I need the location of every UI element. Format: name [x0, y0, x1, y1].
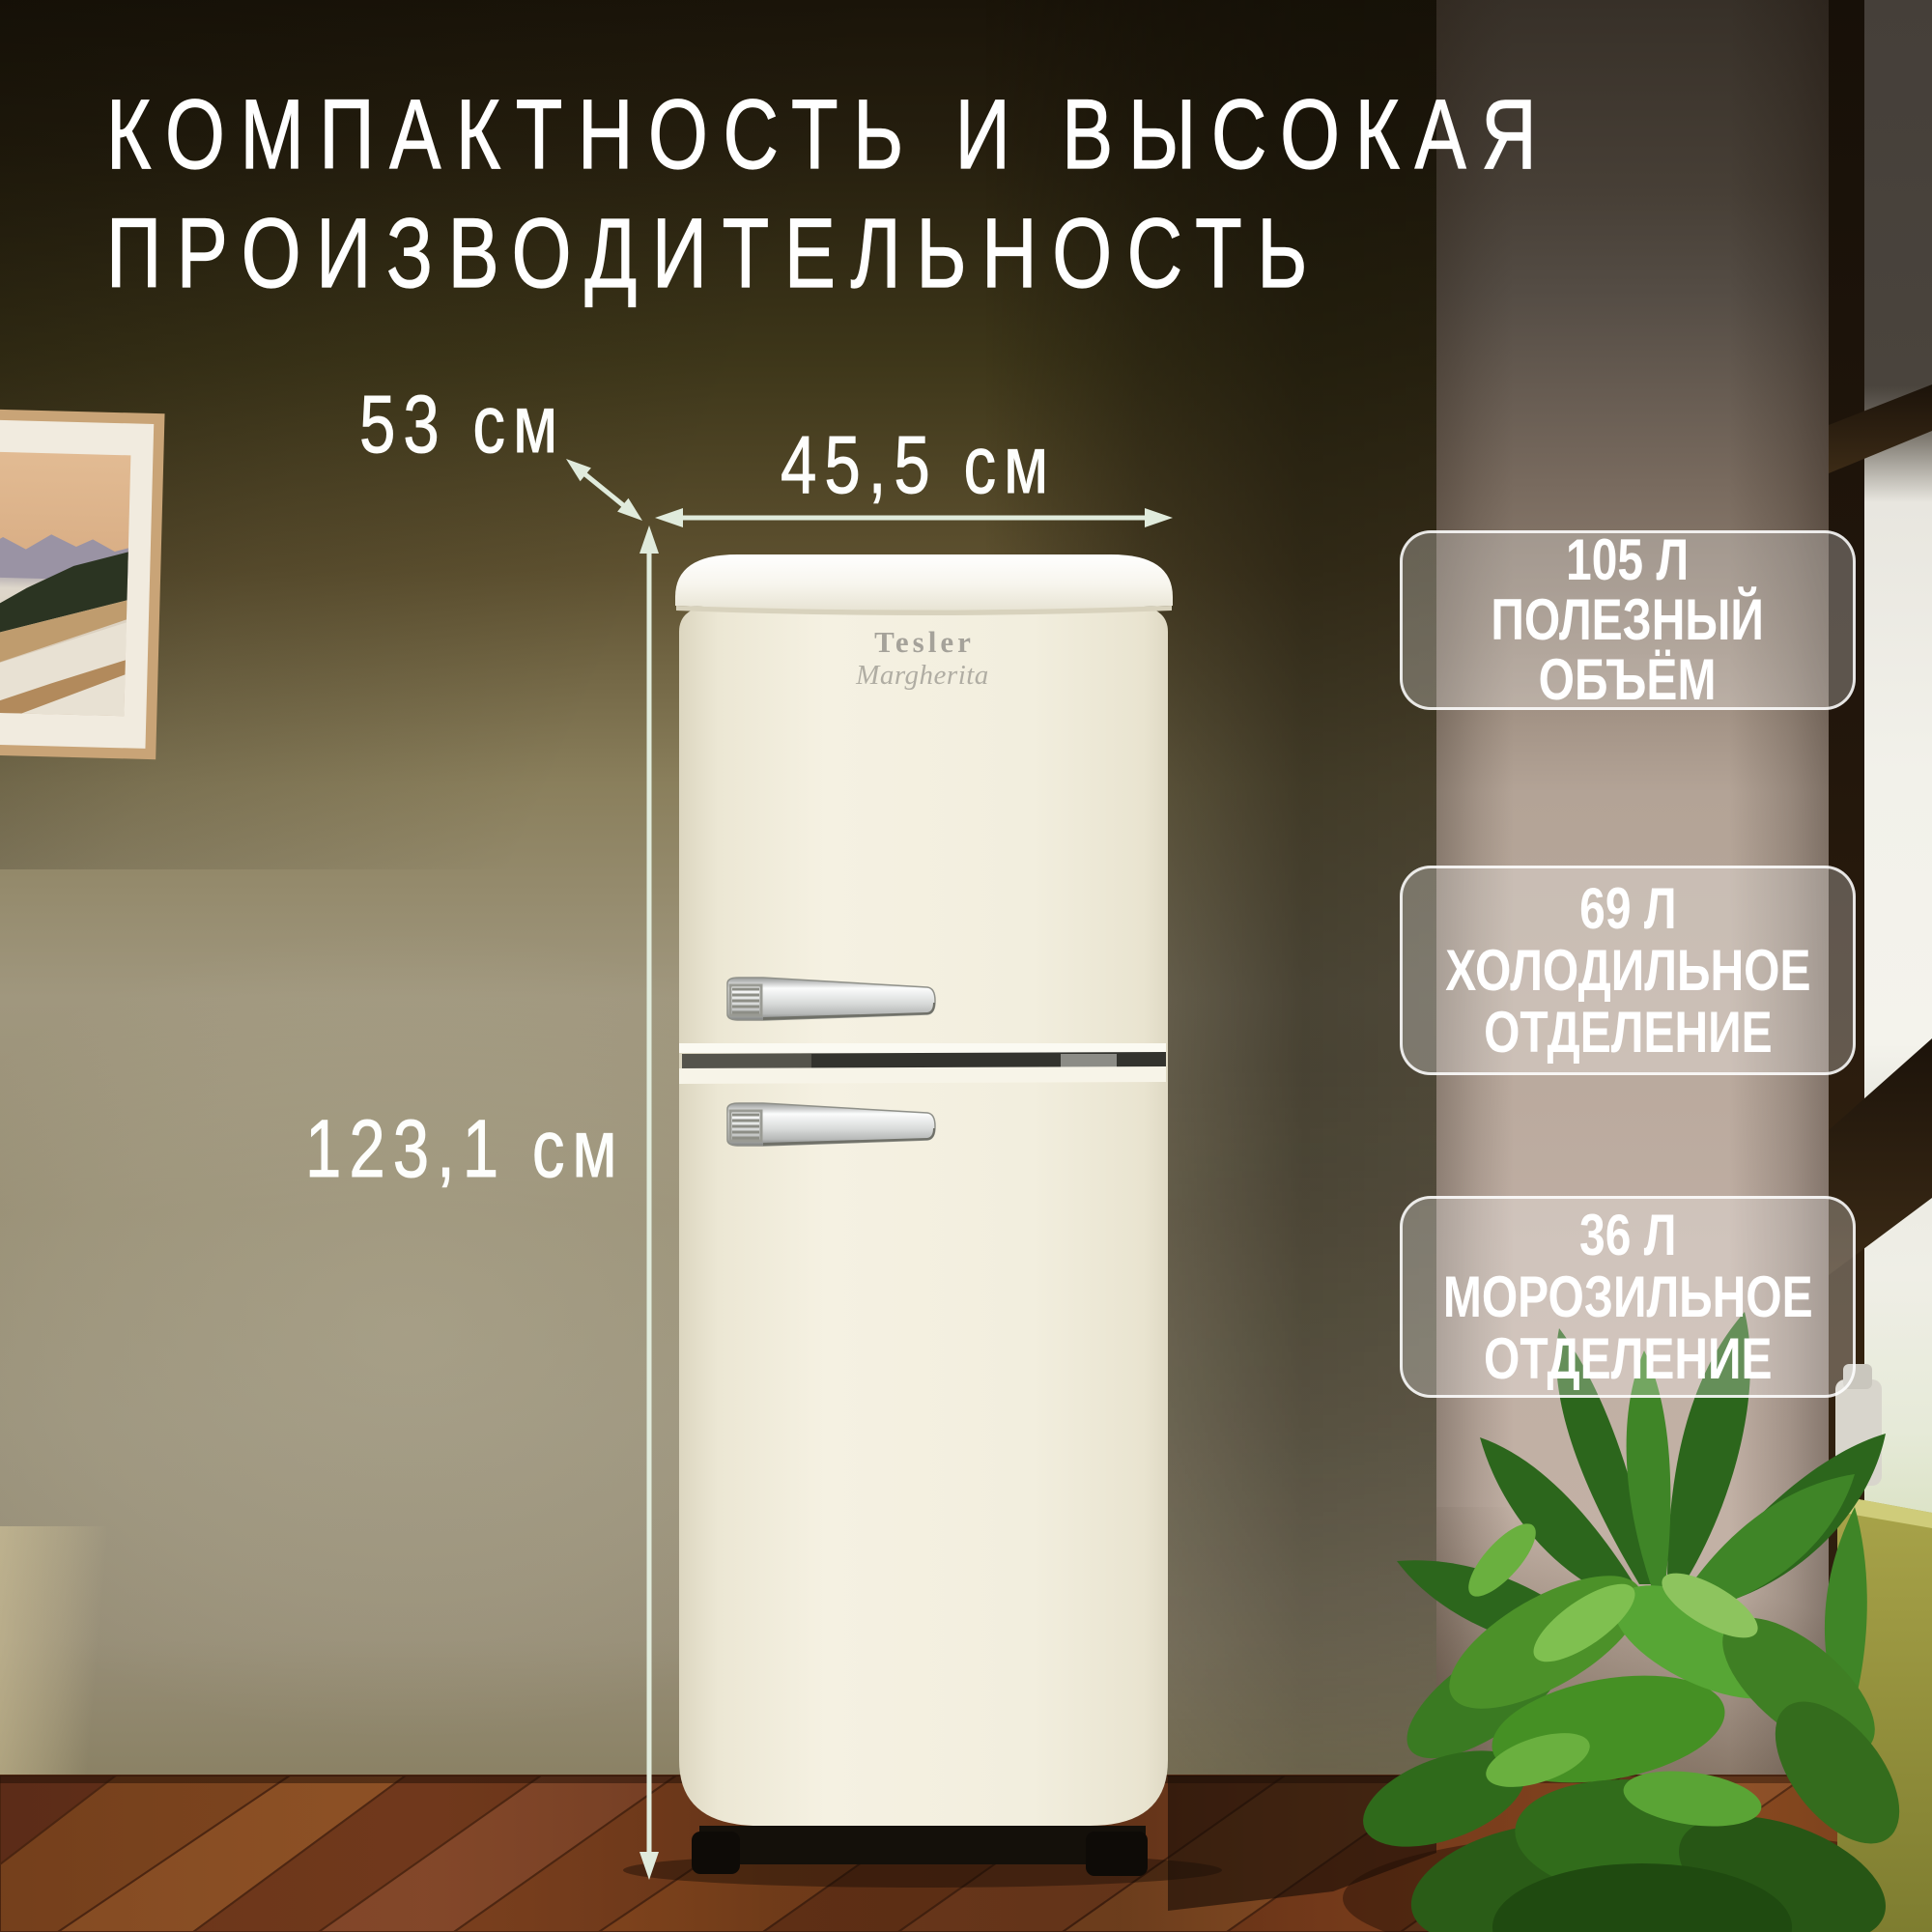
svg-text:Margherita: Margherita: [855, 660, 989, 691]
svg-text:Tesler: Tesler: [874, 625, 975, 659]
